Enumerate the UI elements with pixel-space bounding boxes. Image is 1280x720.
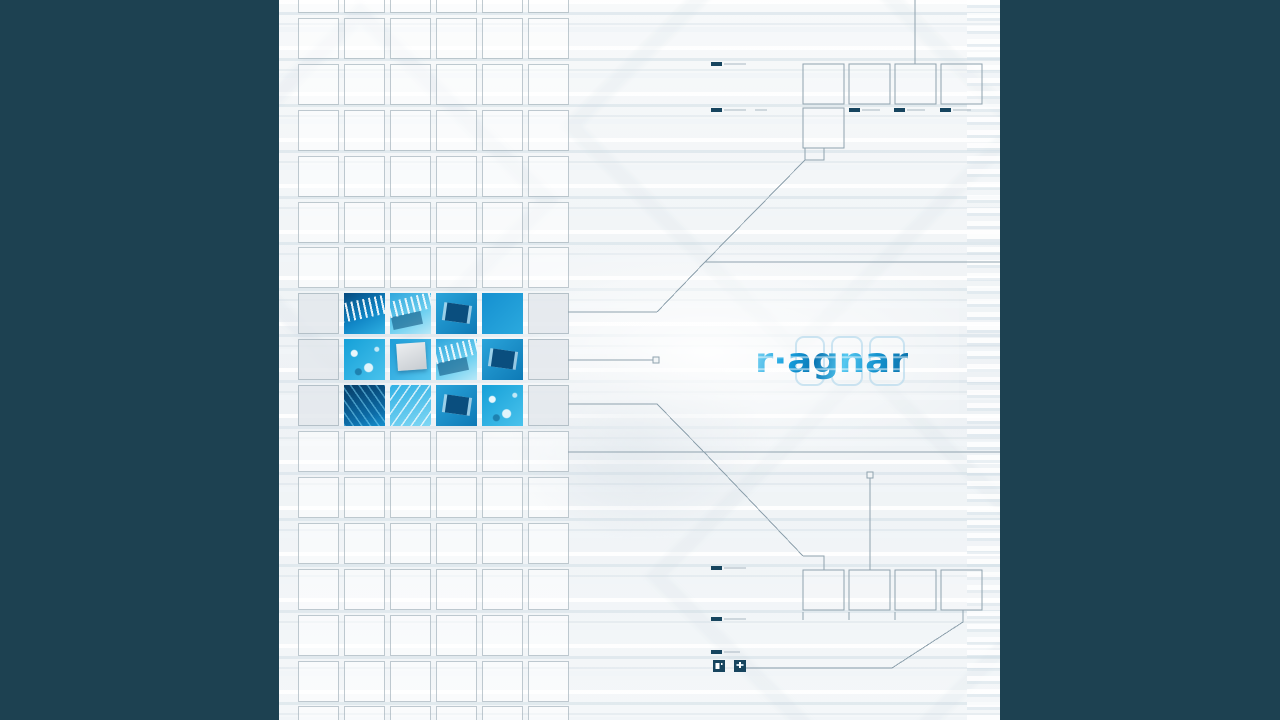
top-box-row: [803, 64, 982, 104]
diagonal-wire: [657, 262, 705, 312]
diagonal-wire: [703, 451, 803, 556]
bottom-box-row: [803, 570, 982, 610]
logo: r·agnar: [755, 338, 908, 384]
video-frame: r·agnar: [0, 0, 1280, 720]
album-art: r·agnar: [279, 0, 1000, 720]
logo-text: r·agnar: [755, 340, 908, 382]
probe-ring: [653, 357, 659, 363]
return-wire: [746, 610, 963, 668]
diagonal-wire: [705, 160, 805, 262]
diagonal-wire: [657, 404, 703, 451]
box-bracket: [805, 148, 824, 160]
probe-ring: [867, 472, 873, 478]
right-pillarbox-bar: [1000, 0, 1280, 720]
single-box-top: [803, 108, 844, 148]
box-bracket: [803, 556, 824, 570]
left-pillarbox-bar: [0, 0, 279, 720]
badge-icons: [713, 660, 746, 672]
